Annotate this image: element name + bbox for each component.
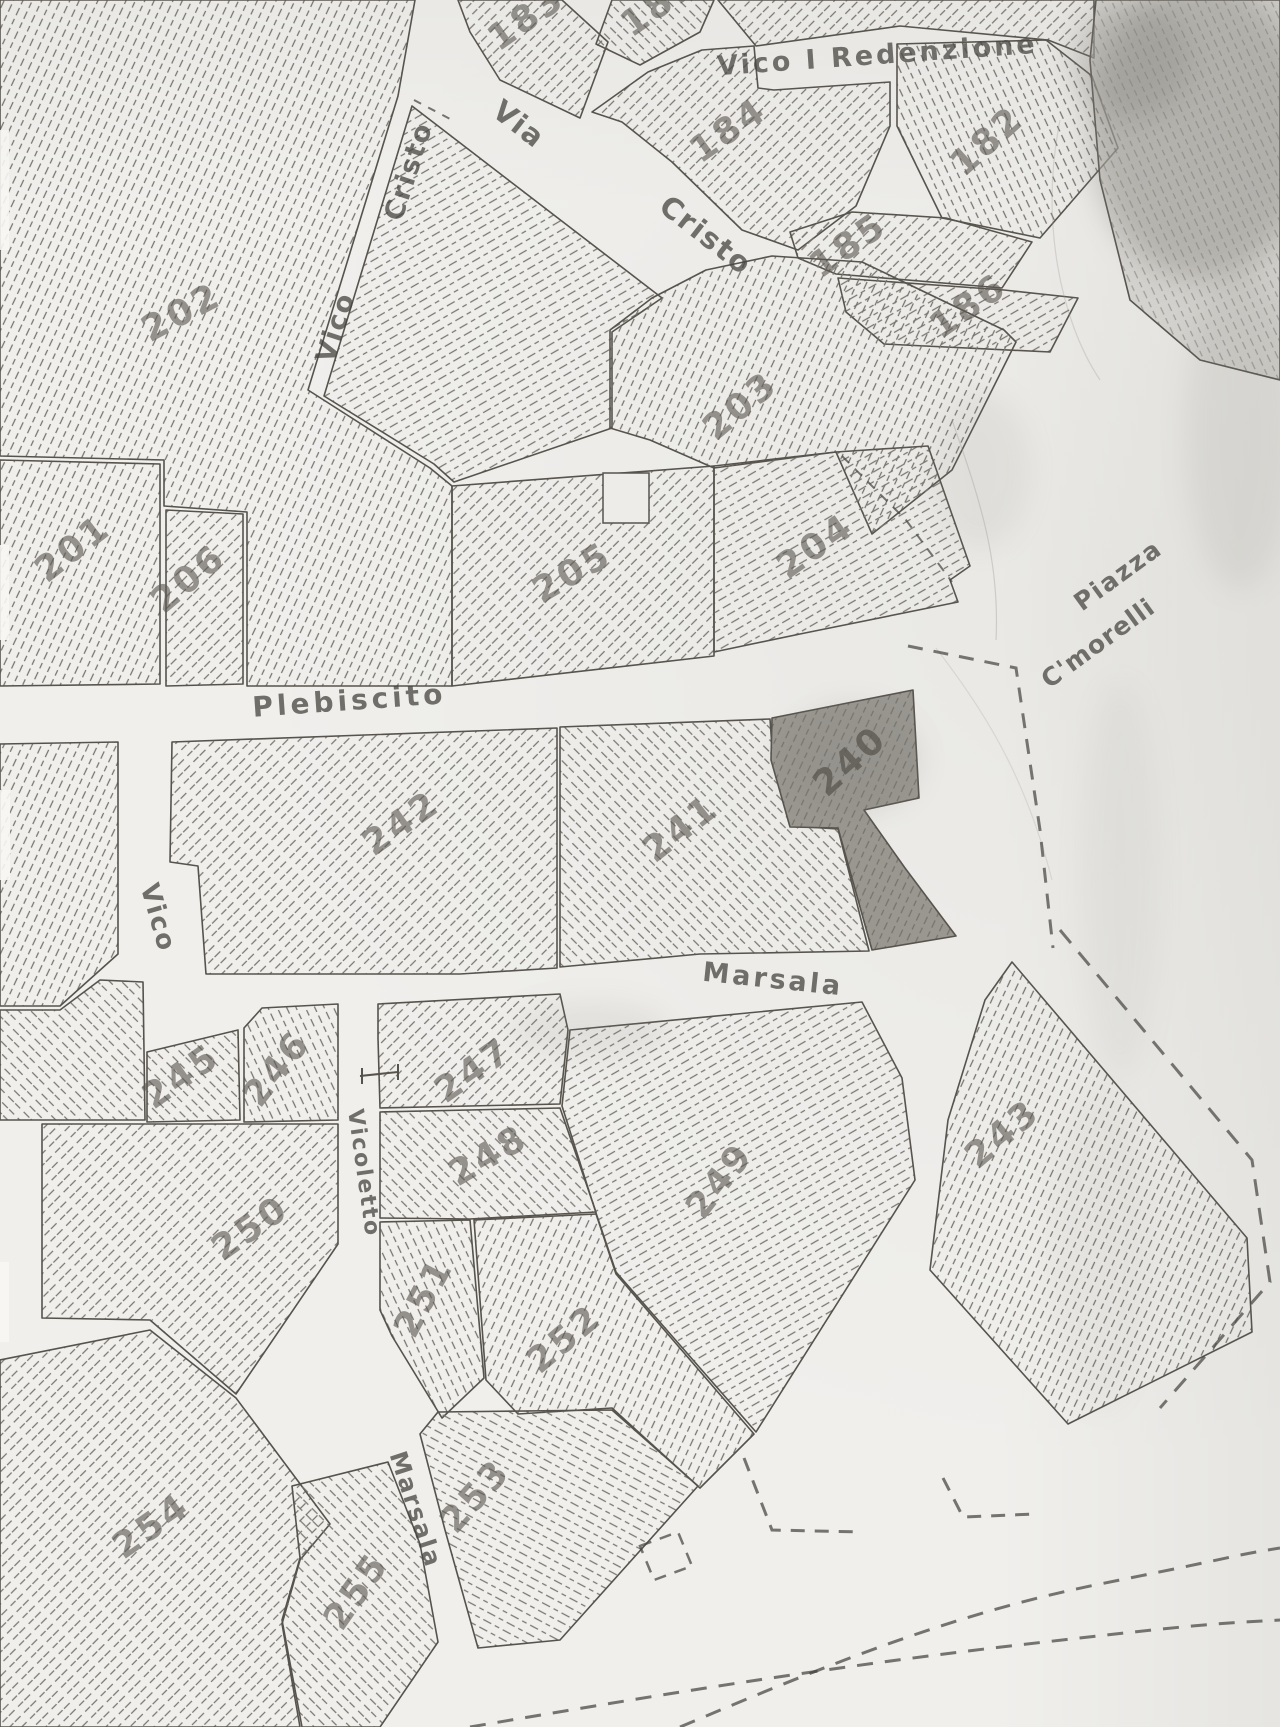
scan-smudge-4 xyxy=(1080,680,1160,1080)
street-label-marsala: Marsala xyxy=(701,957,845,1003)
cadastral-map: 2021831811841821851862032012062052042422… xyxy=(0,0,1280,1727)
street-label-vico: Vico xyxy=(134,880,182,955)
scan-edge-strip-1 xyxy=(0,545,9,640)
street-label-piazza: Piazza xyxy=(1068,533,1167,616)
scan-edge-strip-3 xyxy=(0,1262,9,1342)
parcel-201 xyxy=(0,460,160,686)
building-notch xyxy=(603,473,649,523)
scan-smudge-6 xyxy=(510,1002,670,1058)
street-label-vicoletto: Vicoletto xyxy=(342,1108,385,1239)
scan-smudge-1 xyxy=(1070,0,1190,120)
scan-smudge-5 xyxy=(1050,1090,1150,1410)
scan-edge-strip-2 xyxy=(0,790,10,880)
scan-smudge-3 xyxy=(930,390,1030,550)
map-canvas: 2021831811841821851862032012062052042422… xyxy=(0,0,1280,1727)
dashed-boundary-2 xyxy=(744,1458,862,1532)
scan-scratch-2 xyxy=(936,648,1052,880)
street-label-via: Via xyxy=(486,93,552,155)
parcel-242 xyxy=(170,728,557,974)
scan-edge-strip-0 xyxy=(0,130,9,250)
dashed-boundary-3 xyxy=(943,1478,1035,1517)
dashed-boundary-6 xyxy=(470,1620,1280,1727)
parcel-area-17 xyxy=(0,742,118,1006)
dashed-boundary-5 xyxy=(680,1548,1280,1727)
